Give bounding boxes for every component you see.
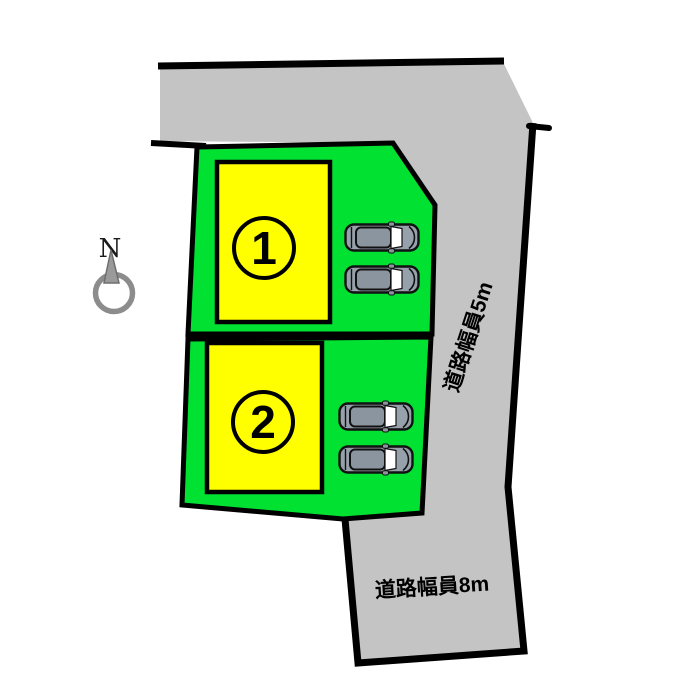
car-icon	[340, 444, 413, 475]
car-icon	[346, 264, 419, 295]
north-compass-icon: N	[96, 234, 133, 312]
road-corner-tick	[529, 126, 549, 128]
lot-2-number: 2	[250, 396, 276, 448]
site-plan-canvas: 1 2 N 道路幅員5m 道路幅員8m	[0, 0, 700, 700]
car-icon	[340, 401, 413, 432]
car-icon	[346, 222, 419, 253]
road-top-edge	[158, 61, 504, 66]
lot-1-number: 1	[251, 222, 277, 274]
site-plan-drawing: 1 2 N 道路幅員5m 道路幅員8m	[0, 0, 700, 700]
